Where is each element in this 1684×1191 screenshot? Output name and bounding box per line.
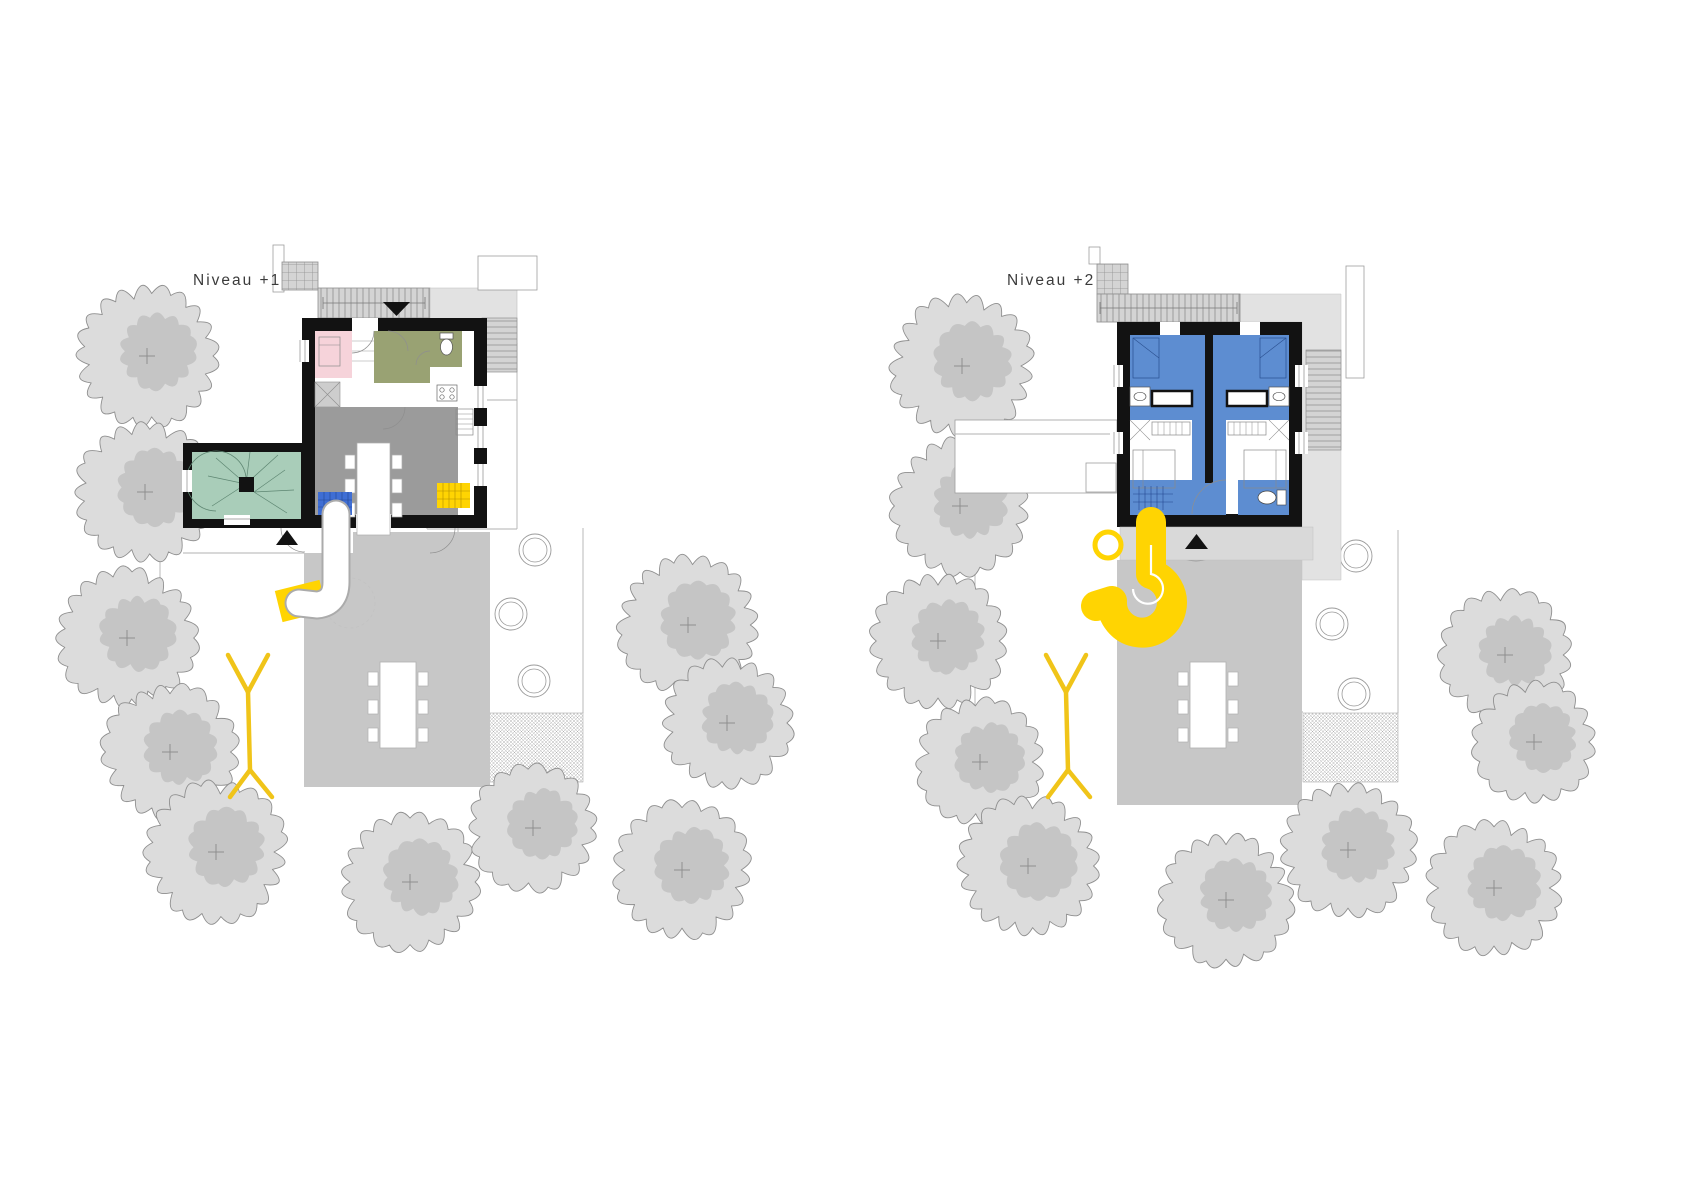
gravel-patch [1303,713,1398,782]
planter-circle [495,598,527,630]
floor-plan-level-2 [955,247,1364,633]
slide-entry-ring [1095,532,1121,558]
stove-icon [437,385,457,401]
tree-icon [613,800,752,940]
closet [352,331,374,368]
planter-circle [519,534,551,566]
railing-outline [1346,266,1364,378]
tree-icon [869,574,1006,708]
stair-flight [482,318,517,372]
shelf [1227,391,1267,406]
chair [1178,672,1188,686]
room-bedroom-pink [315,331,352,378]
plan-label: Niveau +1 [193,272,281,289]
party-wall [1205,335,1213,483]
chair [1228,672,1238,686]
level1-roof-outline [955,420,1117,493]
toilet-icon [440,333,453,355]
garden-table [1178,662,1238,748]
sink-icon [1269,387,1289,406]
entry-arrow-icon [276,530,298,545]
tree-icon [1280,783,1417,918]
chair [1228,700,1238,714]
stair-landing [282,262,318,290]
sapling-stake-icon [228,655,272,797]
chair [1228,728,1238,742]
tree-icon [342,812,481,952]
chair [418,672,428,686]
exterior-stair-top [273,245,430,318]
sapling-stake-icon [1046,655,1090,797]
chair [418,728,428,742]
garden-table [368,662,428,748]
railing-outline [478,256,537,290]
shelf [1152,391,1192,406]
annex-stair-room [182,448,306,526]
site-plan-canvas: Niveau +1 [0,0,1684,1191]
plan-label: Niveau +2 [1007,272,1095,289]
room-hall-olive [374,331,430,383]
tree-icon [889,294,1034,437]
stair-newel [239,477,254,492]
tree-icon [1426,820,1562,956]
planter-circle [1340,540,1372,572]
railing-outline [1089,247,1100,264]
stair-flight [1306,350,1341,450]
chair [368,672,378,686]
planter-circle [1316,608,1348,640]
chair [368,700,378,714]
chair [1178,700,1188,714]
chair [418,700,428,714]
tree-icon [76,285,219,427]
chair [368,728,378,742]
toilet-icon [1258,490,1286,505]
stair-landing [1097,264,1128,294]
planter-circle [518,665,550,697]
chair [1178,728,1188,742]
tree-icon [1157,833,1294,968]
dining-island [357,443,390,535]
planter-circle [1338,678,1370,710]
sink-icon [1130,387,1150,406]
stair-up-icon [437,483,470,508]
